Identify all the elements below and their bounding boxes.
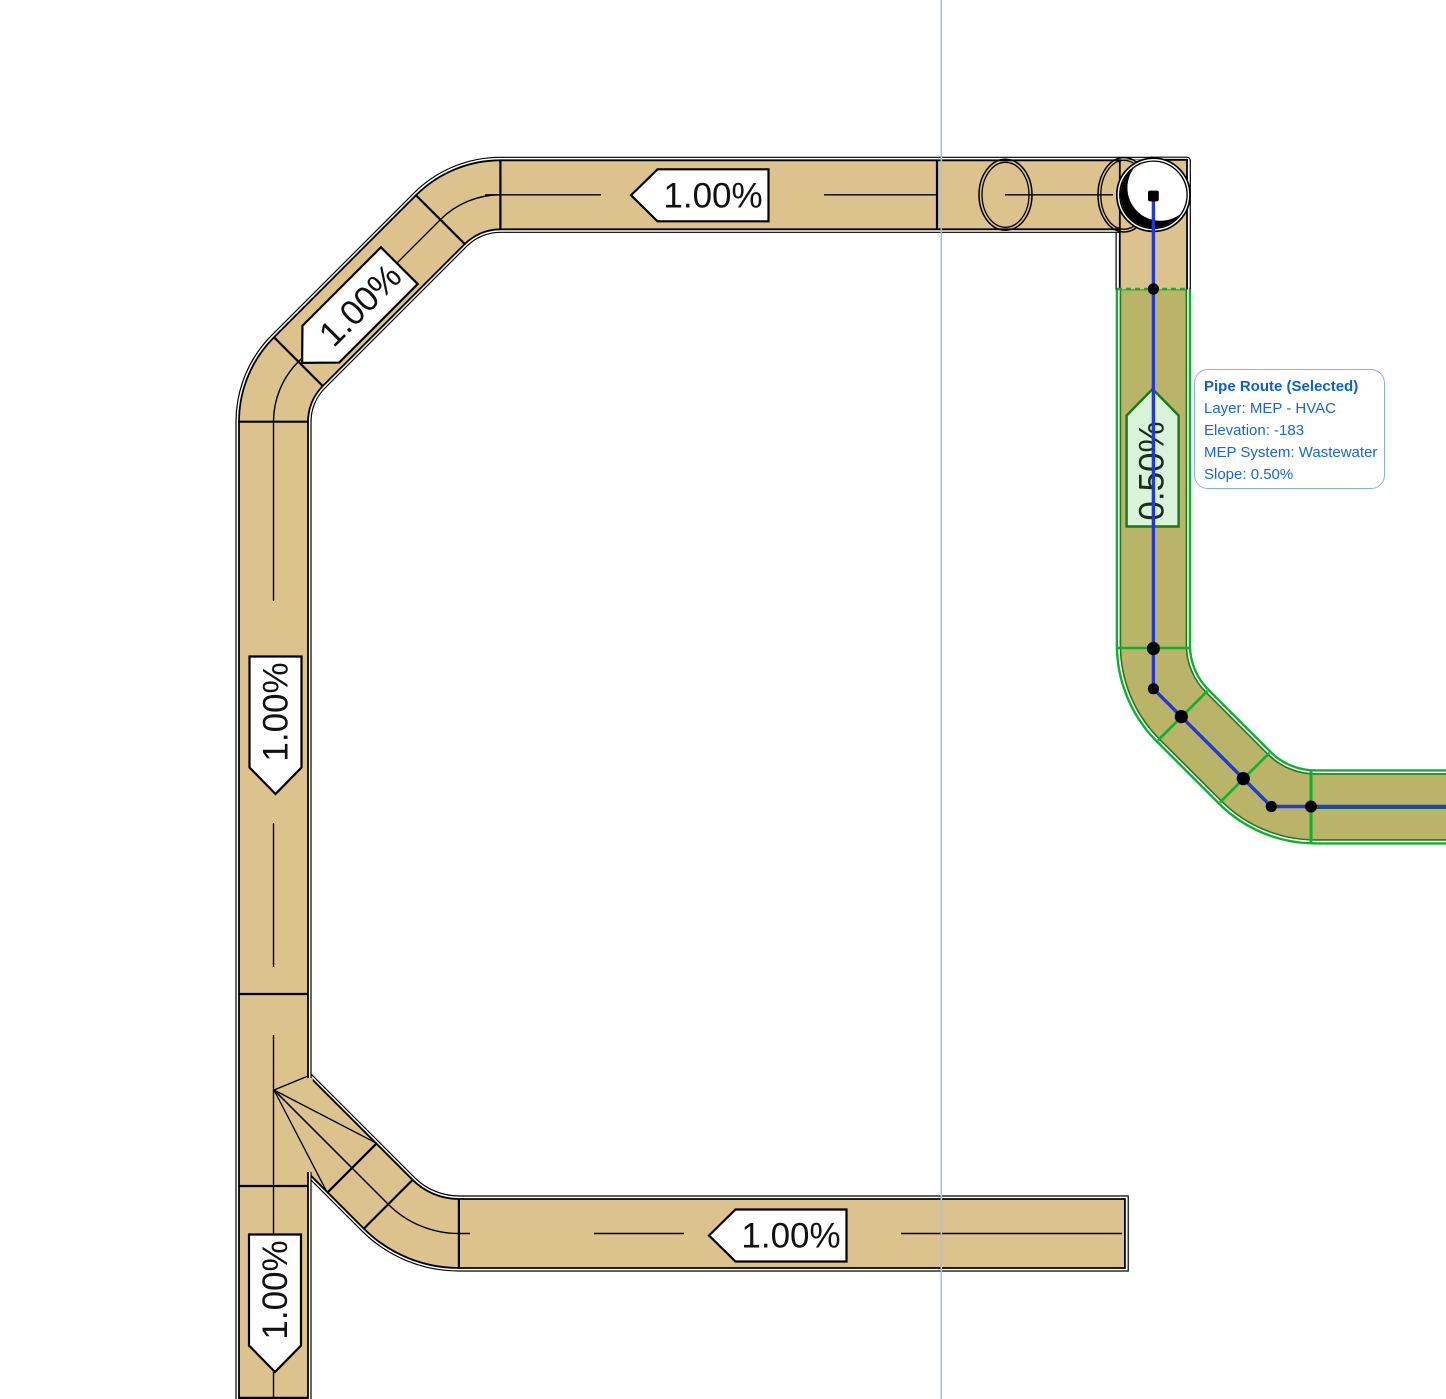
svg-text:1.00%: 1.00% [663, 176, 762, 215]
svg-text:1.00%: 1.00% [256, 1240, 295, 1339]
svg-text:1.00%: 1.00% [741, 1217, 840, 1256]
svg-text:1.00%: 1.00% [257, 662, 296, 761]
